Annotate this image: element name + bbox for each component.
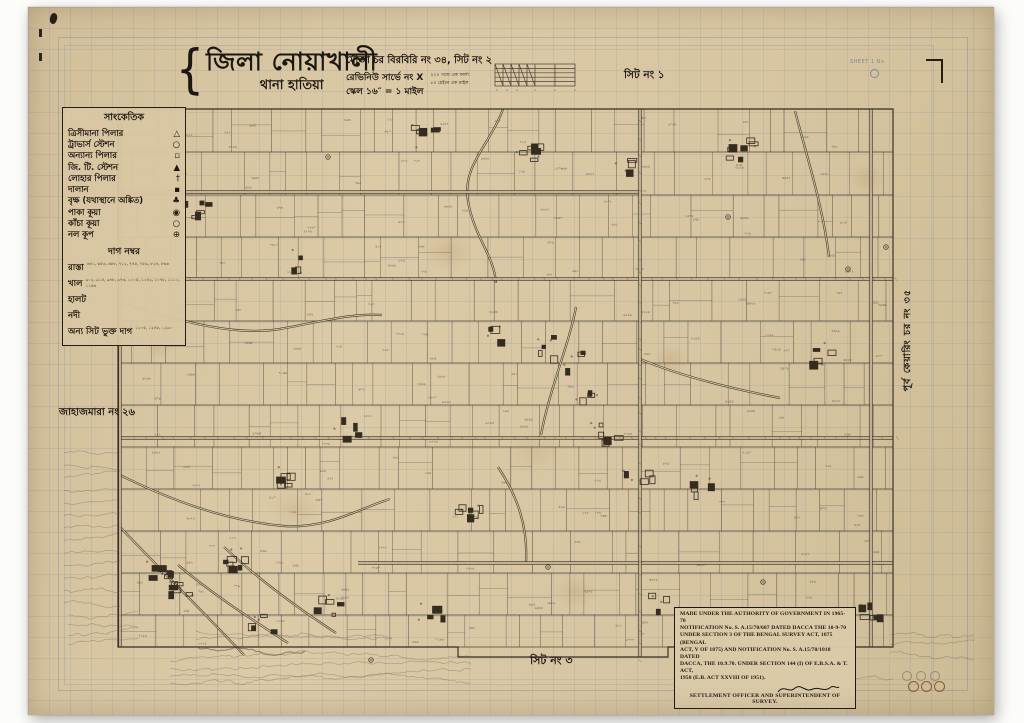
svg-text:০৩৩: ০৩৩ bbox=[600, 514, 606, 518]
svg-text:৯৫৬১: ৯৫৬১ bbox=[481, 157, 490, 161]
svg-text:৩০৬: ৩০৬ bbox=[547, 240, 553, 244]
svg-text:১৪৯৯: ১৪৯৯ bbox=[293, 346, 302, 350]
svg-text:৬৪৮৮: ৬৪৮৮ bbox=[535, 606, 544, 610]
svg-text:৫৫৮৭: ৫৫৮৭ bbox=[152, 451, 161, 455]
svg-text:১৬৫: ১৬৫ bbox=[778, 415, 784, 419]
svg-text:০৭৩: ০৭৩ bbox=[422, 333, 428, 337]
svg-text:৪২৩৪: ৪২৩৪ bbox=[489, 310, 498, 314]
scanned-cadastral-map-photo: ৭৫২৮৩০৮৬৮০৪৫৫৭৭১৫২১৮৫৭৫৪১২১৫৬১৪০৩২৭৩৮১৪৬… bbox=[0, 0, 1024, 723]
iron-pillar-icon: † bbox=[176, 174, 180, 184]
mouza-info-block: মৌজা চর বিরবিরি নং ৩৪, সিট নং ২ রেভিনিউ … bbox=[346, 53, 506, 100]
svg-text:২৫৪: ২৫৪ bbox=[425, 471, 431, 475]
notification-line: DACCA, THE 10.9.70. UNDER SECTION 144 (I… bbox=[680, 661, 850, 675]
svg-text:৭৫৭: ৭৫৭ bbox=[836, 291, 842, 295]
handwritten-signature bbox=[680, 683, 840, 692]
notification-line: ACT, V OF 1875) AND NOTIFICATION No. S. … bbox=[680, 647, 850, 661]
svg-text:৮০১: ৮০১ bbox=[401, 159, 407, 163]
svg-text:৭৯৩০: ৭৯৩০ bbox=[554, 216, 563, 220]
svg-text:৯৫৬৪: ৯৫৬৪ bbox=[747, 409, 756, 413]
svg-text:৭১৪০: ৭১৪০ bbox=[742, 451, 751, 455]
svg-text:০৪১০: ০৪১০ bbox=[270, 243, 279, 247]
svg-text:১১২: ১১২ bbox=[154, 433, 160, 437]
svg-text:৮০৬৩: ৮০৬৩ bbox=[252, 432, 261, 436]
svg-text:৭২৮৪: ৭২৮৪ bbox=[466, 567, 475, 571]
masonry-well-icon: ◉ bbox=[173, 208, 180, 218]
svg-text:৩৫৭: ৩৫৭ bbox=[642, 621, 648, 625]
svg-text:৪৬৩: ৪৬৩ bbox=[249, 124, 255, 128]
svg-text:৫৭৭: ৫৭৭ bbox=[794, 516, 800, 520]
legend-line-item: রাস্তা৬৪১, ৬৫৩, ৬৮৮, ৭১২, ৭৪৫, ৭৮৯, ৮২৪,… bbox=[68, 261, 180, 275]
svg-text:৮৩৮: ৮৩৮ bbox=[693, 218, 699, 222]
svg-text:৪১৭: ৪১৭ bbox=[375, 245, 381, 249]
svg-text:১২২৭: ১২২৭ bbox=[378, 546, 387, 550]
svg-text:৬৯৪৪: ৬৯৪৪ bbox=[524, 417, 533, 421]
svg-text:০২০: ০২০ bbox=[414, 159, 420, 163]
legend-heading: সাংকেতিক bbox=[68, 111, 180, 126]
adjacent-mouza-label-left: জাহাজমারা নং ২৬ bbox=[59, 405, 135, 422]
svg-text:৫৬১: ৫৬১ bbox=[393, 456, 399, 460]
svg-text:২৯৭৫: ২৯৭৫ bbox=[584, 589, 593, 593]
svg-text:৯১৭: ৯১৭ bbox=[398, 220, 404, 224]
svg-text:৭১৩৬: ৭১৩৬ bbox=[279, 371, 288, 375]
svg-text:৪৪৭: ৪৪৭ bbox=[137, 581, 143, 585]
svg-text:২৫৪১: ২৫৪১ bbox=[820, 172, 829, 176]
svg-text:২৭৪: ২৭৪ bbox=[421, 270, 427, 274]
svg-text:৩৭৭৮: ৩৭৭৮ bbox=[649, 578, 658, 582]
svg-text:৯৮৯: ৯৮৯ bbox=[809, 580, 815, 584]
edge-tick bbox=[39, 53, 42, 61]
svg-text:৪৯৮৪: ৪৯৮৪ bbox=[642, 165, 651, 169]
punch-hole bbox=[921, 681, 932, 692]
svg-text:৭২০: ৭২০ bbox=[783, 348, 789, 352]
svg-text:৫৭৪: ৫৭৪ bbox=[806, 596, 812, 600]
svg-text:৭২৫: ৭২৫ bbox=[825, 464, 831, 468]
svg-text:৭৬৯: ৭৬৯ bbox=[418, 245, 424, 249]
svg-text:৭১৫: ৭১৫ bbox=[520, 140, 526, 144]
svg-text:৭৮২: ৭৮২ bbox=[672, 301, 678, 305]
notification-line: 1950 (E.B. ACT XXVIII OF 1951). bbox=[680, 675, 850, 682]
svg-text:৭৫২: ৭৫২ bbox=[224, 130, 230, 134]
svg-text:২০৪: ২০৪ bbox=[704, 177, 710, 181]
svg-text:৪৫৫৭: ৪৫৫৭ bbox=[440, 122, 449, 126]
svg-text:৭৭৫: ৭৭৫ bbox=[336, 344, 342, 348]
plot-number-list: ৬৪১, ৬৫৩, ৬৮৮, ৭১২, ৭৪৫, ৭৮৯, ৮২৪, ৮৬৬ bbox=[87, 261, 180, 267]
traverse-station-icon: ○ bbox=[173, 140, 180, 150]
adjacent-sheet-label-top: সিট নং ১ bbox=[624, 68, 665, 85]
svg-text:৪২৬: ৪২৬ bbox=[276, 206, 282, 210]
svg-text:১৮৩: ১৮৩ bbox=[183, 465, 189, 469]
svg-text:৮৩৭: ৮৩৭ bbox=[307, 313, 313, 317]
svg-text:৬৩০: ৬৩০ bbox=[316, 498, 322, 502]
svg-text:৫৬১: ৫৬১ bbox=[572, 269, 578, 273]
triangle-pillar-icon: △ bbox=[173, 129, 180, 139]
svg-text:৮৮৩: ৮৮৩ bbox=[430, 356, 436, 360]
legend-line-item: নদী bbox=[68, 309, 180, 323]
revenue-survey-line: রেভিনিউ সার্ভে নং X bbox=[346, 72, 423, 86]
svg-text:৫৬৪: ৫৬৪ bbox=[873, 550, 879, 554]
svg-text:৮২৩: ৮২৩ bbox=[398, 259, 404, 263]
punch-hole bbox=[930, 671, 940, 681]
svg-text:৪৭৪: ৪৭৪ bbox=[662, 462, 668, 466]
diagonal-scale-bar bbox=[492, 57, 580, 101]
svg-text:৬৪২৭: ৬৪২৭ bbox=[843, 358, 852, 362]
tube-well-icon: ⊕ bbox=[173, 230, 180, 240]
punch-hole bbox=[908, 681, 919, 692]
svg-text:০০০৮: ০০০৮ bbox=[322, 442, 331, 446]
svg-text:৮২২৫: ৮২২৫ bbox=[429, 439, 438, 443]
svg-text:৪৩৯: ৪৩৯ bbox=[260, 549, 266, 553]
svg-text:১১৬২: ১১৬২ bbox=[765, 333, 774, 337]
svg-text:৬০২: ৬০২ bbox=[358, 387, 364, 391]
svg-text:৩৭৯৪: ৩৭৯৪ bbox=[388, 263, 397, 267]
svg-text:৬১৪: ৬১৪ bbox=[854, 523, 860, 527]
legend-line-item: হালট bbox=[68, 293, 180, 307]
blue-circle-mark bbox=[870, 69, 879, 78]
svg-text:৪৭৪৩: ৪৭৪৩ bbox=[725, 399, 734, 403]
svg-text:২৮৭২: ২৮৭২ bbox=[186, 516, 195, 520]
legend-label: নল কূপ bbox=[68, 228, 94, 242]
svg-text:০৩১৩: ০৩১৩ bbox=[772, 348, 781, 352]
scale-line: স্কেল ১৬″ = ১ মাইল bbox=[346, 86, 423, 100]
gt-station-icon: ▲ bbox=[173, 163, 180, 173]
svg-text:৪২২৩: ৪২২৩ bbox=[442, 400, 451, 404]
plot-number-list: ৯০২, ৯১৫, ৯৪৮, ৯৭৩, ১০০৫, ১০৪২, ১০৭৮, ১১… bbox=[86, 277, 180, 288]
svg-text:২২০২: ২২০২ bbox=[192, 484, 201, 488]
legend-line-item: অন্য সিট ভুক্ত দাগ১২০৫, ১২৪৮, ১২৯০ bbox=[68, 325, 180, 339]
government-notification-box: MADE UNDER THE AUTHORITY OF GOVERNMENT I… bbox=[674, 607, 856, 709]
legend-row: নল কূপ⊕ bbox=[68, 230, 180, 241]
punch-hole bbox=[902, 671, 912, 681]
mouza-line: মৌজা চর বিরবিরি নং ৩৪, সিট নং ২ bbox=[346, 53, 506, 70]
punch-hole bbox=[934, 681, 945, 692]
svg-text:৬৮৪৬: ৬৮৪৬ bbox=[740, 216, 749, 220]
svg-text:২৪১: ২৪১ bbox=[742, 120, 748, 124]
svg-text:০১৪০: ০১৪০ bbox=[764, 291, 773, 295]
svg-text:৪৯৭: ৪৯৭ bbox=[186, 560, 192, 564]
svg-text:১৬৭: ১৬৭ bbox=[546, 272, 552, 276]
svg-text:১২৪: ১২৪ bbox=[519, 169, 525, 173]
svg-text:১১৭: ১১৭ bbox=[229, 536, 235, 540]
svg-text:৭৪৩৮: ৭৪৩৮ bbox=[244, 341, 253, 345]
svg-text:২০০০: ২০০০ bbox=[626, 638, 635, 642]
notification-footer: SETTLEMENT OFFICER AND SUPERINTENDENT OF… bbox=[680, 693, 850, 705]
svg-text:৯১৪৫: ৯১৪৫ bbox=[485, 421, 494, 425]
svg-text:৩০৪: ৩০৪ bbox=[154, 396, 160, 400]
svg-text:৮৪২৭: ৮৪২৭ bbox=[586, 172, 595, 176]
punch-hole bbox=[916, 671, 926, 681]
svg-text:৭৬৫: ৭৬৫ bbox=[355, 181, 361, 185]
svg-text:৩৮৪: ৩৮৪ bbox=[567, 384, 573, 388]
svg-text:৭২৬: ৭২৬ bbox=[382, 348, 388, 352]
svg-text:৪৬৩: ৪৬৩ bbox=[344, 118, 350, 122]
svg-text:২৩৭: ২৩৭ bbox=[799, 257, 805, 261]
other-pillar-icon: ▫ bbox=[174, 151, 180, 161]
svg-text:০৪০: ০৪০ bbox=[219, 261, 225, 265]
svg-text:১২১: ১২১ bbox=[387, 117, 393, 121]
svg-text:৭৭১৪: ৭৭১৪ bbox=[396, 332, 405, 336]
svg-text:৬৬৪৫: ৬৬৪৫ bbox=[341, 588, 350, 592]
svg-text:৫৬৬: ৫৬৬ bbox=[857, 475, 863, 479]
svg-text:৯২৮: ৯২৮ bbox=[320, 469, 326, 473]
notification-line: MADE UNDER THE AUTHORITY OF GOVERNMENT I… bbox=[680, 611, 850, 625]
plot-number-heading: দাগ নম্বর bbox=[68, 244, 180, 259]
svg-text:৪২৬: ৪২৬ bbox=[558, 505, 564, 509]
unit-note-1: ২২০ গজে এক ফার্লং bbox=[430, 72, 469, 80]
building-icon: ▪ bbox=[174, 185, 180, 195]
svg-text:৫৬১: ৫৬১ bbox=[831, 145, 837, 149]
blue-pencil-sheet-note: SHEET 1 No bbox=[850, 59, 884, 65]
svg-text:১২১: ১২১ bbox=[452, 515, 458, 519]
svg-text:১৭৬: ১৭৬ bbox=[594, 511, 600, 515]
svg-text:২৩৫: ২৩৫ bbox=[183, 609, 189, 613]
adjacent-mouza-label-right: পূর্ব কেয়ারিং চর নং ৩৫ bbox=[900, 289, 915, 391]
tree-icon: ♣ bbox=[172, 196, 180, 206]
svg-text:৯৬৮: ৯৬৮ bbox=[561, 166, 567, 170]
svg-text:১৫১১: ১৫১১ bbox=[363, 414, 372, 418]
svg-text:৬২৭৭: ৬২৭৭ bbox=[541, 207, 550, 211]
svg-text:০৭৪০: ০৭৪০ bbox=[371, 566, 380, 570]
svg-text:৪৬৮: ৪৬৮ bbox=[469, 626, 475, 630]
svg-text:১৮৬৯: ১৮৬৯ bbox=[417, 382, 426, 386]
svg-text:৩০৩: ৩০৩ bbox=[820, 507, 826, 511]
svg-text:৮৮১৮: ৮৮১৮ bbox=[832, 399, 841, 403]
svg-text:৭৯৩৯: ৭৯৩৯ bbox=[878, 303, 887, 307]
svg-text:৪১০: ৪১০ bbox=[269, 496, 275, 500]
svg-text:৮৩৮: ৮৩৮ bbox=[293, 563, 299, 567]
svg-text:৪৫৮: ৪৫৮ bbox=[644, 352, 650, 356]
adjacent-sheet-label-bottom: সিট নং ৩ bbox=[530, 652, 573, 671]
svg-text:০৬১: ০৬১ bbox=[198, 589, 204, 593]
edge-tick bbox=[39, 29, 42, 37]
svg-text:৪১৩: ৪১৩ bbox=[840, 221, 846, 225]
svg-text:৫২২৯: ৫২২৯ bbox=[641, 310, 650, 314]
plot-number-list: ১২০৫, ১২৪৮, ১২৯০ bbox=[135, 325, 180, 331]
svg-text:১৭৯২: ১৭৯২ bbox=[341, 596, 350, 600]
svg-text:৩৫০৫: ৩৫০৫ bbox=[780, 366, 789, 370]
svg-text:৭৭৫৪: ৭৭৫৪ bbox=[623, 432, 632, 436]
svg-text:১৪৬: ১৪৬ bbox=[857, 514, 863, 518]
svg-text:৪৬৮: ৪৬৮ bbox=[412, 640, 418, 644]
svg-text:৬৮০: ৬৮০ bbox=[384, 129, 390, 133]
svg-text:৭৯৪৫: ৭৯৪৫ bbox=[251, 176, 260, 180]
svg-text:৫৬১: ৫৬১ bbox=[611, 222, 617, 226]
svg-text:৪৮৮: ৪৮৮ bbox=[245, 185, 251, 189]
svg-text:১৯৬: ১৯৬ bbox=[503, 409, 509, 413]
svg-text:৭২৪: ৭২৪ bbox=[745, 232, 751, 236]
svg-text:৬১৫৯: ৬১৫৯ bbox=[735, 166, 744, 170]
map-sheet: ৭৫২৮৩০৮৬৮০৪৫৫৭৭১৫২১৮৫৭৫৪১২১৫৬১৪০৩২৭৩৮১৪৬… bbox=[28, 7, 994, 715]
svg-text:১৩৫৪: ১৩৫৪ bbox=[738, 297, 747, 301]
svg-text:২২০৬: ২২০৬ bbox=[303, 230, 312, 234]
svg-text:৪৭৪৮: ৪৭৪৮ bbox=[142, 377, 151, 381]
svg-text:১০৮১: ১০৮১ bbox=[275, 560, 284, 564]
svg-text:৬৫১: ৬৫১ bbox=[511, 372, 517, 376]
svg-text:৩৬৭৫: ৩৬৭৫ bbox=[747, 302, 756, 306]
svg-text:০০৯: ০০৯ bbox=[233, 584, 239, 588]
svg-text:৪০৩২: ৪০৩২ bbox=[668, 123, 677, 127]
svg-text:৮৩৮: ৮৩৮ bbox=[844, 433, 850, 437]
svg-text:৮১৭০: ৮১৭০ bbox=[428, 395, 437, 399]
svg-text:৫১৫১: ৫১৫১ bbox=[801, 552, 810, 556]
svg-text:৫২৭: ৫২৭ bbox=[327, 476, 333, 480]
svg-text:১৩০: ১৩০ bbox=[235, 308, 241, 312]
title-bracket-ornament: { bbox=[176, 45, 204, 95]
svg-text:৬০০: ৬০০ bbox=[876, 354, 882, 358]
notification-line: UNDER SECTION 3 OF THE BENGAL SURVEY ACT… bbox=[680, 632, 850, 646]
svg-text:০০০: ০০০ bbox=[209, 544, 215, 548]
svg-text:৪১১: ৪১১ bbox=[305, 492, 311, 496]
svg-text:৮৫৫: ৮৫৫ bbox=[829, 254, 835, 258]
svg-text:০১৯৬: ০১৯৬ bbox=[435, 638, 444, 642]
svg-text:৭০৮৫: ৭০৮৫ bbox=[138, 634, 147, 638]
earthen-well-icon: ○ bbox=[173, 219, 180, 229]
svg-text:৫৭৫৪: ৫৭৫৪ bbox=[228, 145, 237, 149]
registration-corner-mark bbox=[926, 59, 943, 83]
svg-text:৫২৪: ৫২৪ bbox=[594, 479, 600, 483]
legend-box: সাংকেতিক ত্রিসীমানা পিলার△ ট্রাভার্স স্ট… bbox=[62, 107, 186, 346]
svg-text:৯৫৫৫: ৯৫৫৫ bbox=[520, 424, 529, 428]
svg-text:০০৭: ০০৭ bbox=[719, 500, 725, 504]
svg-text:১৭২৫: ১৭২৫ bbox=[198, 641, 207, 645]
svg-text:২৬৮৯: ২৬৮৯ bbox=[547, 601, 556, 605]
svg-text:৭৩২: ৭৩২ bbox=[574, 540, 580, 544]
svg-text:৬৯৫৮: ৬৯৫৮ bbox=[444, 205, 453, 209]
svg-text:৭৩১৯: ৭৩১৯ bbox=[831, 329, 840, 333]
svg-text:১৯০২: ১৯০২ bbox=[603, 199, 612, 203]
svg-text:২১৪৩: ২১৪৩ bbox=[691, 336, 700, 340]
svg-text:৩৫৪৭: ৩৫৪৭ bbox=[782, 176, 791, 180]
svg-text:২২৫৮: ২২৫৮ bbox=[276, 619, 285, 623]
svg-text:৬২৫৯: ৬২৫৯ bbox=[623, 313, 632, 317]
unit-note-2: ৮০ চেইনে এক মাইল bbox=[430, 80, 469, 88]
svg-text:৬১১: ৬১১ bbox=[615, 623, 621, 627]
svg-text:৭৯৭৮: ৭৯৭৮ bbox=[437, 374, 446, 378]
svg-text:১২৬: ১২৬ bbox=[290, 510, 296, 514]
svg-text:১৩৯৬: ১৩৯৬ bbox=[186, 372, 195, 376]
legend-line-item: খাল৯০২, ৯১৫, ৯৪৮, ৯৭৩, ১০০৫, ১০৪২, ১০৭৮,… bbox=[68, 277, 180, 291]
notification-line: NOTIFICATION No. S. A.15/70/687 DATED DA… bbox=[680, 625, 850, 632]
svg-text:০২০: ০২০ bbox=[368, 303, 374, 307]
svg-text:১৭৫: ১৭৫ bbox=[582, 511, 588, 515]
